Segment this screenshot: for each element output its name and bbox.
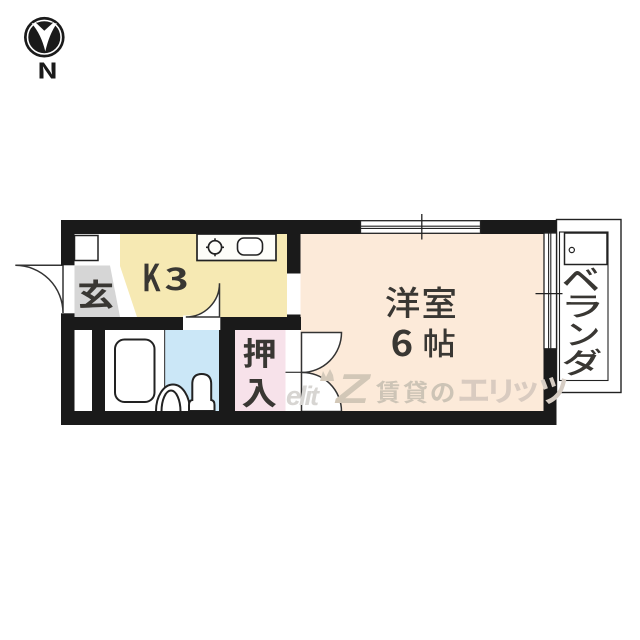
svg-text:elit: elit	[286, 381, 320, 411]
svg-text:Z: Z	[334, 366, 372, 413]
